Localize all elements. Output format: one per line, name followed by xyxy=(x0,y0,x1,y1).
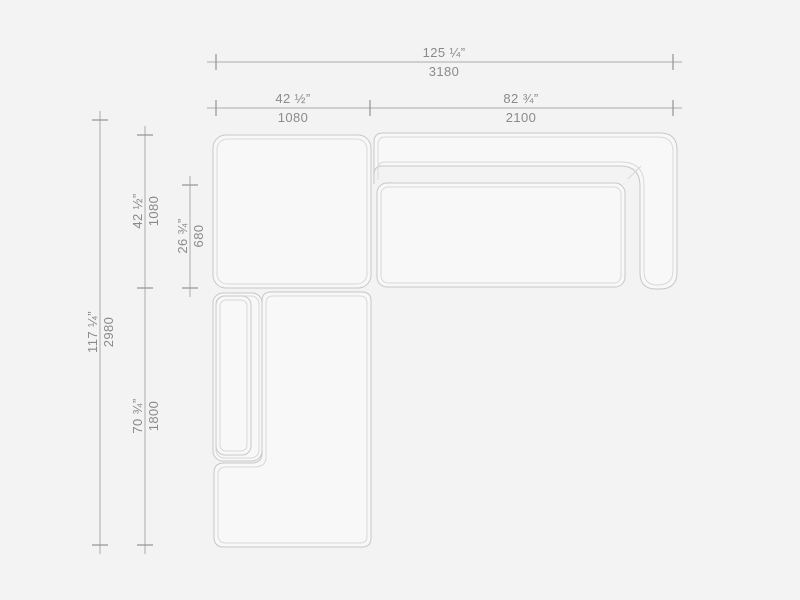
total-width-inches-label: 125 ¼” xyxy=(423,45,466,60)
corner-module xyxy=(213,135,371,288)
total-width-mm-label: 3180 xyxy=(429,64,460,79)
chaise-length-mm-label: 1800 xyxy=(146,401,161,432)
sofa-seat-cushion xyxy=(377,183,625,287)
corner-module-width-mm-label: 1080 xyxy=(278,110,309,125)
dimension-total-width: 125 ¼” 3180 xyxy=(207,45,682,79)
sofa-module-width-inches-label: 82 ¾” xyxy=(503,91,538,106)
corner-module-depth-mm-label: 1080 xyxy=(146,196,161,227)
seat-depth-inches-label: 26 ¾” xyxy=(175,218,190,253)
dimension-total-depth: 117 ¼” 2980 xyxy=(85,111,116,554)
corner-module-width-inches-label: 42 ½” xyxy=(275,91,310,106)
sofa-module-width-mm-label: 2100 xyxy=(506,110,537,125)
total-depth-inches-label: 117 ¼” xyxy=(85,311,100,353)
sofa-dimension-drawing: 125 ¼” 3180 42 ½” 1080 82 ¾” 2100 117 ¼”… xyxy=(0,0,800,600)
drawing-svg: 125 ¼” 3180 42 ½” 1080 82 ¾” 2100 117 ¼”… xyxy=(0,0,800,600)
seat-depth-mm-label: 680 xyxy=(191,225,206,248)
total-depth-mm-label: 2980 xyxy=(101,317,116,348)
dimension-corner-depth-and-chaise: 42 ½” 1080 70 ¾” 1800 xyxy=(130,126,161,554)
chaise-armrest-cushion xyxy=(216,296,251,455)
sofa-outline-group xyxy=(213,133,677,547)
dimension-seat-depth: 26 ¾” 680 xyxy=(175,176,206,297)
corner-module-depth-inches-label: 42 ½” xyxy=(130,193,145,228)
chaise-length-inches-label: 70 ¾” xyxy=(130,398,145,433)
dimension-module-widths: 42 ½” 1080 82 ¾” 2100 xyxy=(207,91,682,125)
